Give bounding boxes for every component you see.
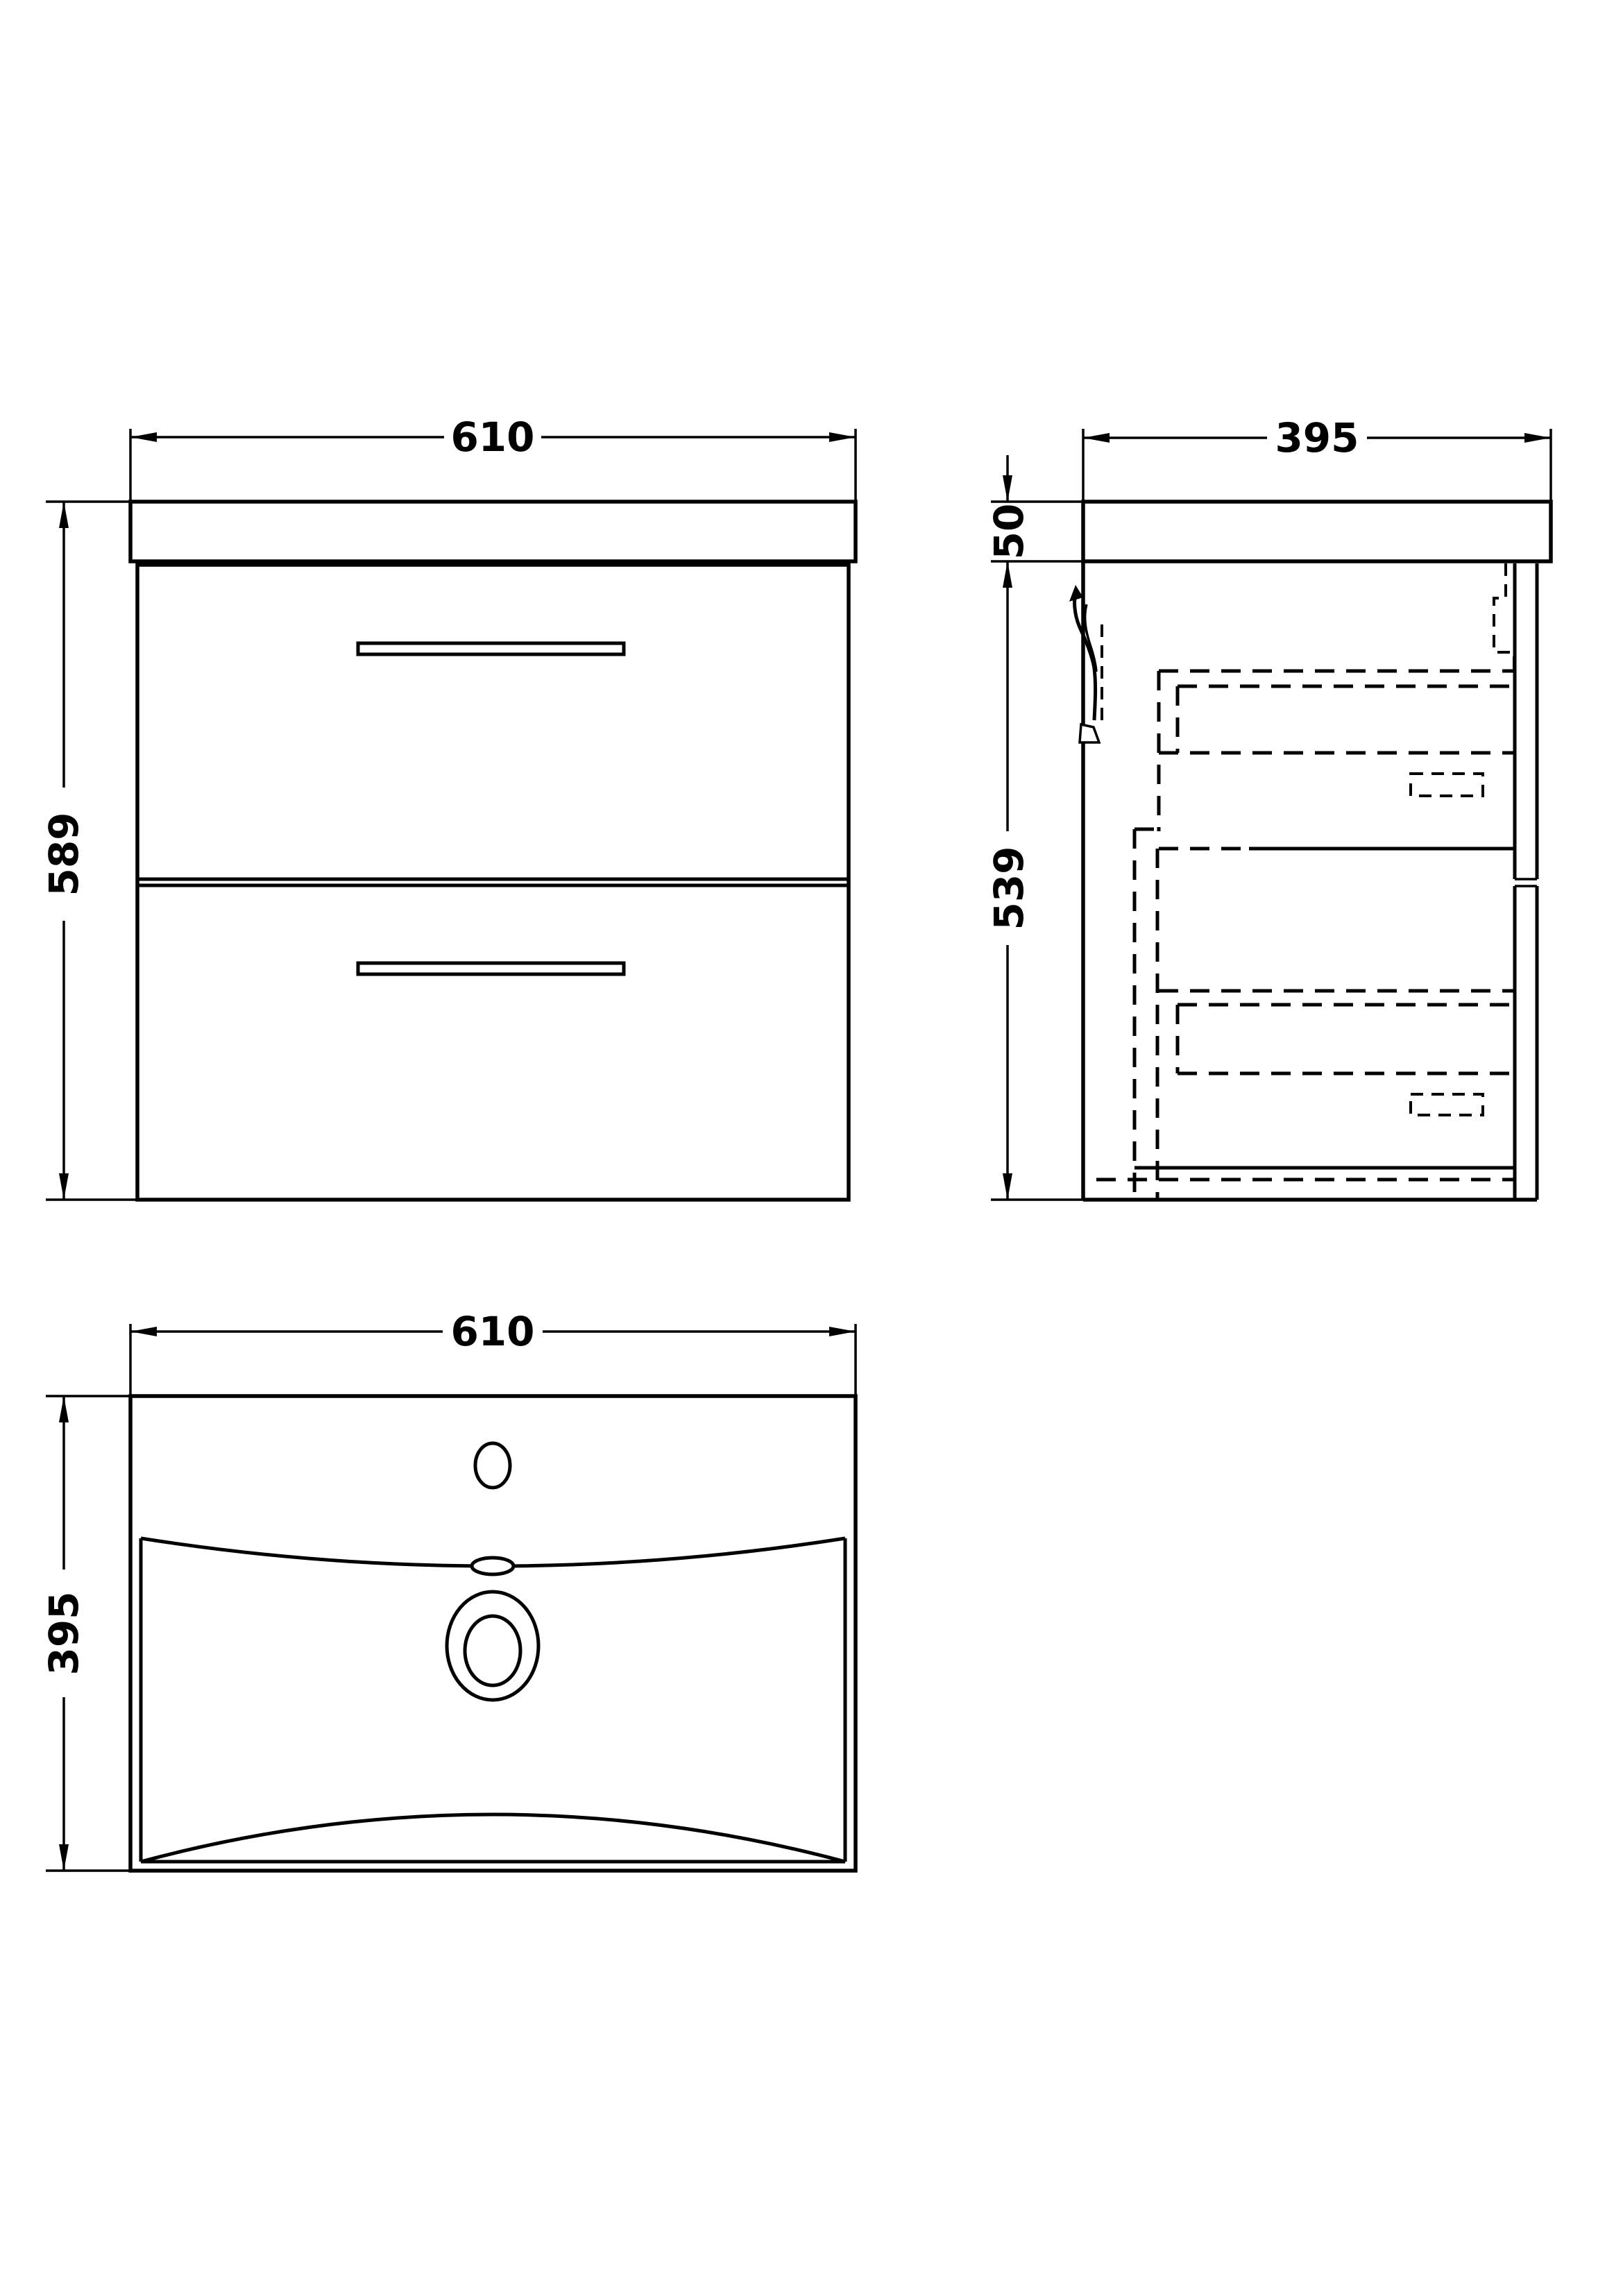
tap-hole [475,1443,510,1488]
vanity-unit-technical-drawing: 610 589 [0,0,1623,2296]
drawer-runner [1411,774,1483,796]
arrow-up-icon [1003,561,1012,588]
arrow-left-icon [130,1327,157,1336]
front-cabinet [137,565,849,1200]
arrow-down-icon [59,1844,69,1871]
hidden-upper-drawer [1159,671,1513,831]
arrow-down-icon [1003,1173,1012,1200]
overflow-hole [472,1558,513,1574]
hanger-foot [1080,724,1099,742]
top-drawer-handle [358,643,624,654]
side-worktop-height-label: 50 [985,504,1033,560]
side-depth-dimension: 395 [1083,414,1551,502]
arrow-right-icon [829,432,856,442]
front-height-dimension: 589 [40,502,137,1200]
front-elevation-view: 610 589 [40,414,856,1200]
hanger-hook-tip [1069,585,1083,602]
plan-width-label: 610 [450,1308,534,1355]
side-elevation-view: 395 50 539 [985,414,1551,1200]
front-drawer-divider [137,879,849,885]
hidden-wall-bracket [1494,563,1514,671]
wall-hanger-bracket-detail [1069,585,1102,742]
side-cabinet-height-label: 539 [985,846,1033,930]
front-height-label: 589 [40,812,87,896]
side-worktop-height-dimension: 50 [985,455,1083,561]
drawer-runner [1411,1094,1483,1115]
arrow-down-icon [1003,475,1012,502]
arrow-up-icon [59,502,69,528]
basin-plan-view: 610 395 [40,1308,856,1871]
front-width-dimension: 610 [130,414,856,502]
hanger-hook-inner-curve [1085,604,1096,672]
front-worktop-basin [130,502,856,561]
front-width-label: 610 [450,414,534,461]
plan-depth-dimension: 395 [40,1396,130,1871]
arrow-left-icon [1083,433,1110,443]
basin-inner-bowl [141,1538,845,1862]
arrow-down-icon [59,1173,69,1200]
arrow-right-icon [829,1327,856,1336]
side-cabinet-height-dimension: 539 [985,561,1083,1200]
arrow-right-icon [1524,433,1551,443]
waste-inner-ring [465,1616,520,1685]
bottom-drawer-handle [358,963,624,974]
technical-drawing-page: 610 589 [0,0,1623,2296]
back-panel-joint [1515,879,1537,886]
side-worktop-basin [1083,502,1551,561]
arrow-left-icon [130,432,157,442]
bowl-back-curve [141,1814,845,1862]
side-cabinet-outline [1083,561,1537,1200]
arrow-up-icon [59,1396,69,1422]
basin-outline [130,1396,856,1871]
plan-depth-label: 395 [40,1591,87,1675]
plan-width-dimension: 610 [130,1308,856,1396]
side-depth-label: 395 [1275,414,1359,461]
hidden-drawer-front-panel [1135,829,1159,1200]
